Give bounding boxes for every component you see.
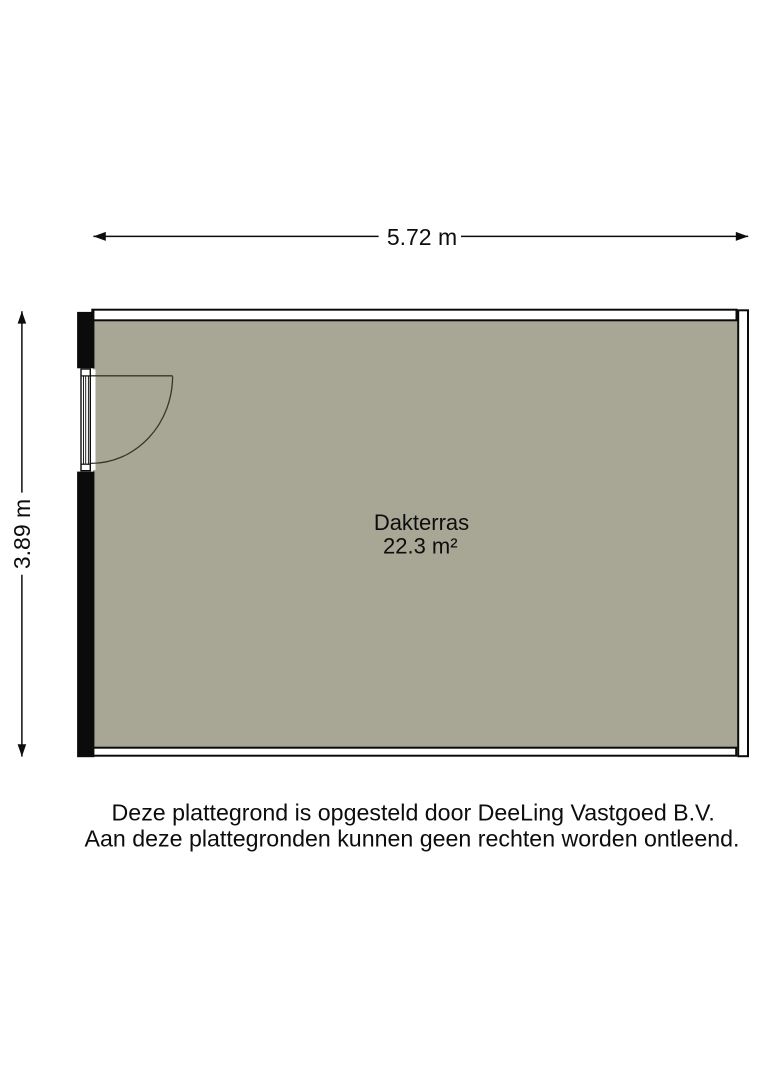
svg-text:Deze plattegrond is opgesteld: Deze plattegrond is opgesteld door DeeLi…	[112, 800, 715, 826]
svg-text:22.3 m²: 22.3 m²	[383, 534, 458, 559]
svg-text:Aan deze plattegronden kunnen: Aan deze plattegronden kunnen geen recht…	[85, 825, 740, 851]
svg-text:Dakterras: Dakterras	[374, 510, 469, 535]
svg-text:3.89 m: 3.89 m	[9, 499, 35, 569]
svg-text:5.72 m: 5.72 m	[387, 224, 457, 250]
